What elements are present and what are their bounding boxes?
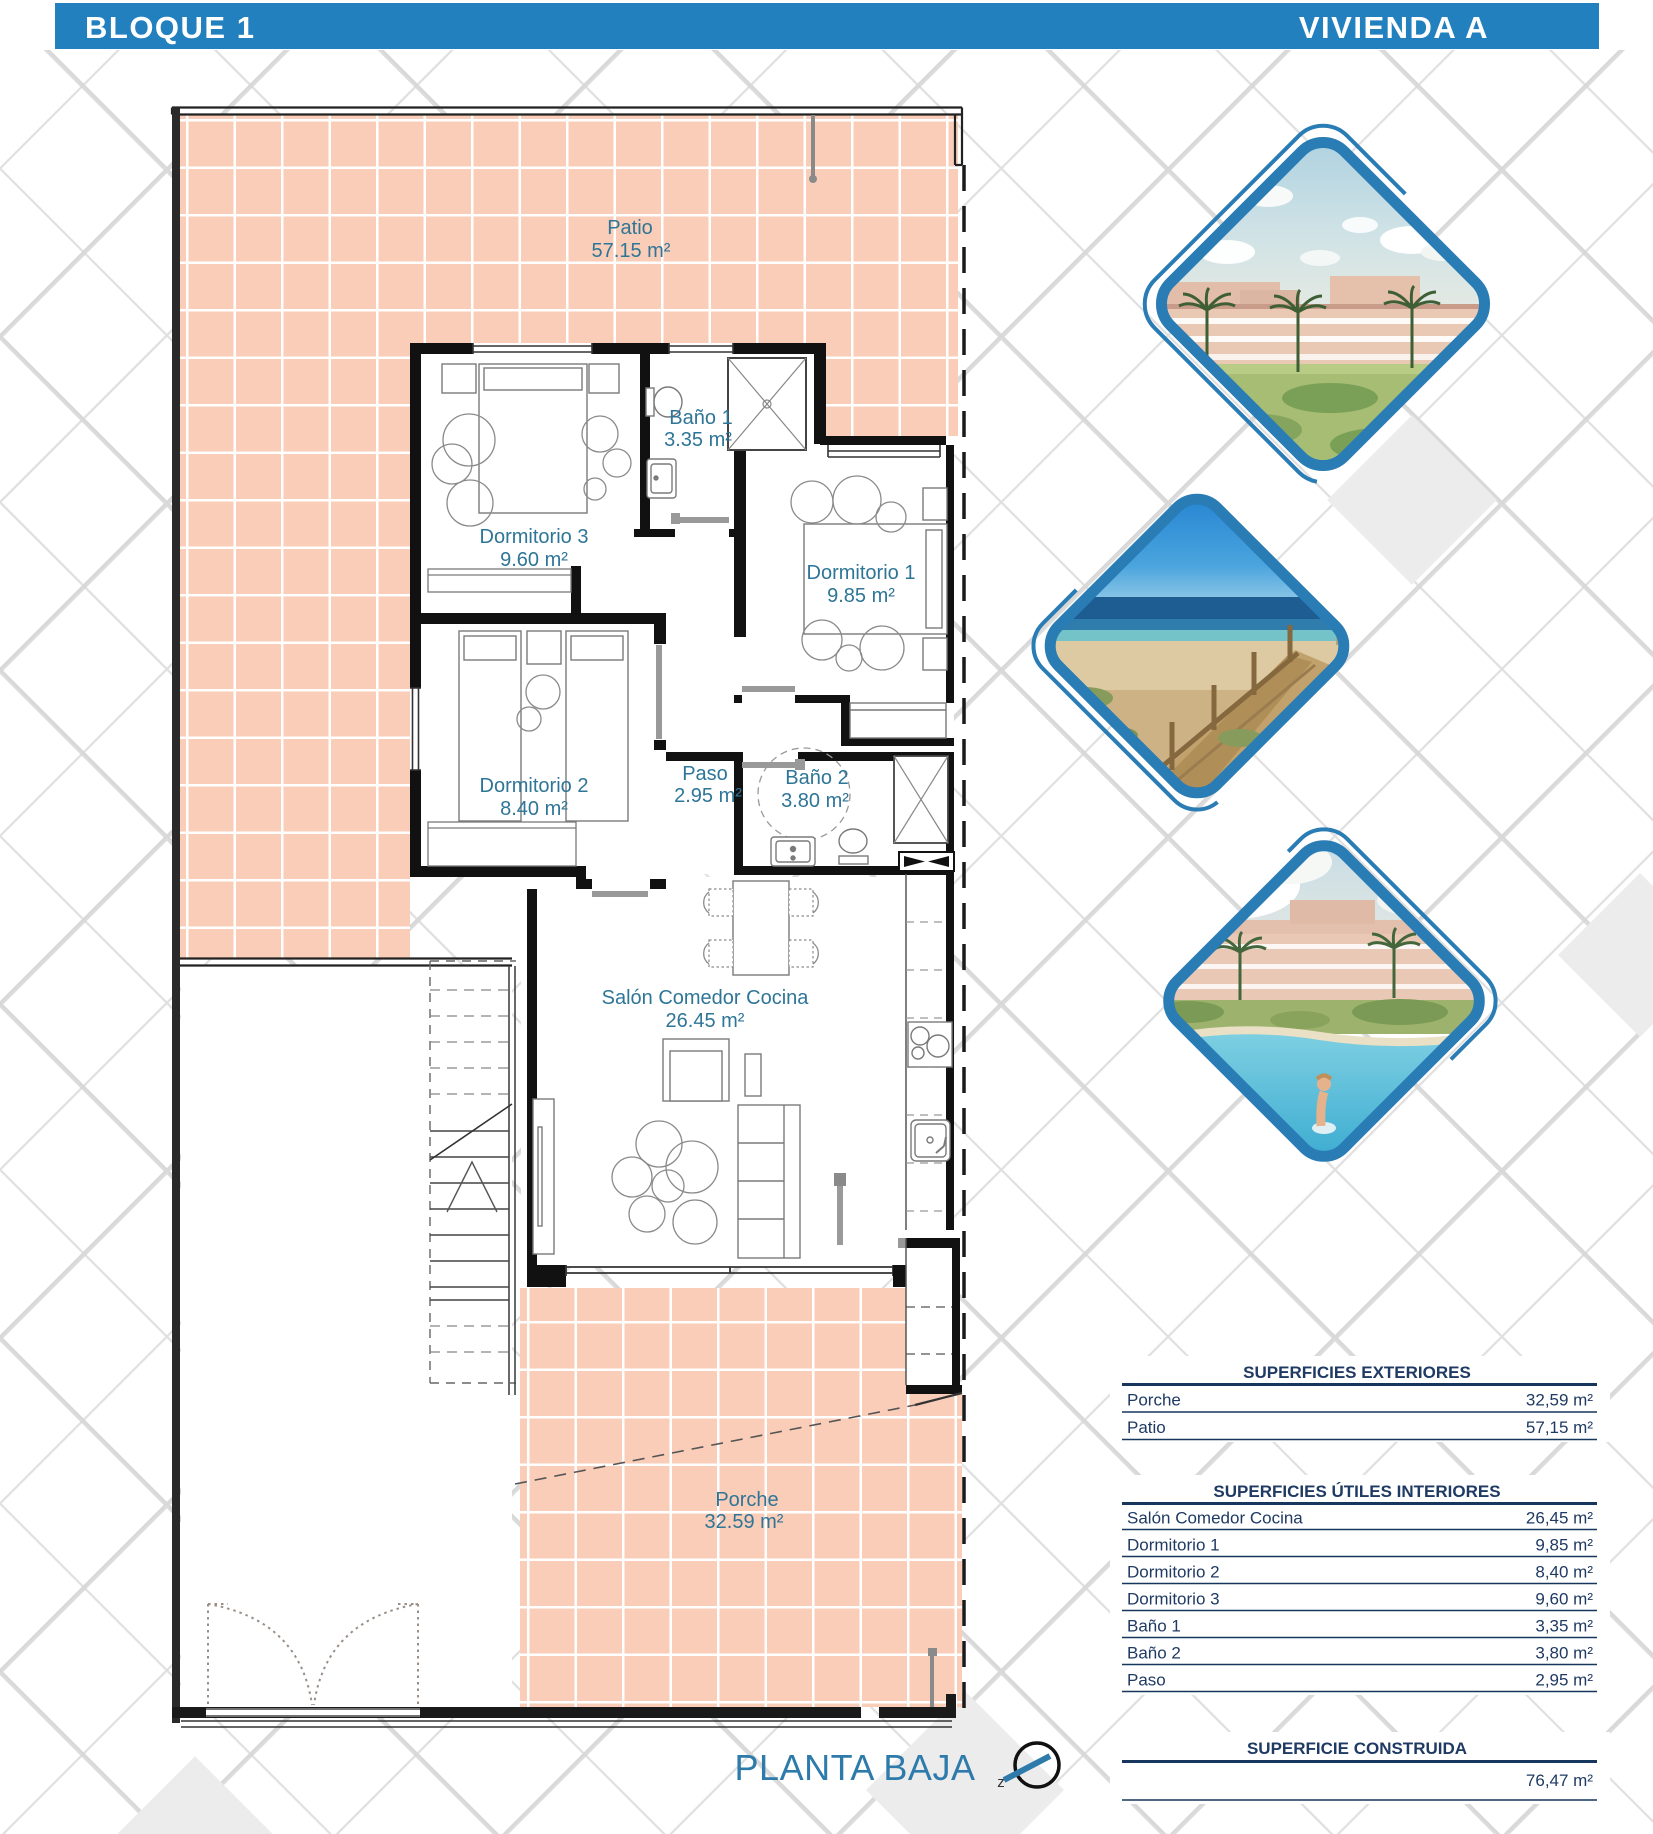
- svg-text:Baño 2: Baño 2: [1127, 1644, 1181, 1663]
- svg-text:32.59 m²: 32.59 m²: [705, 1511, 784, 1533]
- svg-text:3,80 m²: 3,80 m²: [1535, 1644, 1593, 1663]
- svg-text:z: z: [997, 1774, 1005, 1791]
- svg-text:32,59 m²: 32,59 m²: [1526, 1391, 1593, 1410]
- svg-text:2,95 m²: 2,95 m²: [1535, 1671, 1593, 1690]
- svg-text:57,15 m²: 57,15 m²: [1526, 1418, 1593, 1437]
- svg-text:PLANTA BAJA: PLANTA BAJA: [735, 1747, 976, 1788]
- svg-text:VIVIENDA A: VIVIENDA A: [1299, 10, 1489, 45]
- svg-text:Salón Comedor Cocina: Salón Comedor Cocina: [1127, 1509, 1303, 1528]
- svg-text:26.45 m²: 26.45 m²: [666, 1010, 745, 1032]
- svg-text:Baño 2: Baño 2: [785, 767, 848, 789]
- svg-text:Dormitorio 3: Dormitorio 3: [1127, 1590, 1220, 1609]
- svg-text:Dormitorio 1: Dormitorio 1: [1127, 1536, 1220, 1555]
- svg-text:76,47 m²: 76,47 m²: [1526, 1771, 1593, 1790]
- svg-text:8.40 m²: 8.40 m²: [500, 798, 568, 820]
- svg-text:Dormitorio 3: Dormitorio 3: [480, 526, 589, 548]
- svg-text:SUPERFICIES ÚTILES INTERIORES: SUPERFICIES ÚTILES INTERIORES: [1213, 1482, 1500, 1501]
- svg-text:Dormitorio 2: Dormitorio 2: [1127, 1563, 1220, 1582]
- svg-text:SUPERFICIE CONSTRUIDA: SUPERFICIE CONSTRUIDA: [1247, 1739, 1467, 1758]
- svg-text:Porche: Porche: [715, 1489, 778, 1511]
- svg-text:9,60 m²: 9,60 m²: [1535, 1590, 1593, 1609]
- svg-text:SUPERFICIES EXTERIORES: SUPERFICIES EXTERIORES: [1243, 1363, 1471, 1382]
- svg-text:BLOQUE 1: BLOQUE 1: [85, 10, 255, 45]
- svg-text:9.85 m²: 9.85 m²: [827, 585, 895, 607]
- svg-text:9,85 m²: 9,85 m²: [1535, 1536, 1593, 1555]
- svg-text:Salón Comedor Cocina: Salón Comedor Cocina: [602, 987, 810, 1009]
- svg-text:Baño 1: Baño 1: [1127, 1617, 1181, 1636]
- svg-text:Dormitorio 1: Dormitorio 1: [807, 562, 916, 584]
- svg-text:57.15 m²: 57.15 m²: [592, 240, 671, 262]
- svg-text:Patio: Patio: [607, 217, 653, 239]
- svg-text:Paso: Paso: [1127, 1671, 1166, 1690]
- svg-text:9.60 m²: 9.60 m²: [500, 549, 568, 571]
- svg-text:3,35 m²: 3,35 m²: [1535, 1617, 1593, 1636]
- svg-text:Paso: Paso: [682, 763, 728, 785]
- svg-text:Porche: Porche: [1127, 1391, 1181, 1410]
- svg-text:Dormitorio 2: Dormitorio 2: [480, 775, 589, 797]
- svg-text:8,40 m²: 8,40 m²: [1535, 1563, 1593, 1582]
- svg-text:Patio: Patio: [1127, 1418, 1166, 1437]
- svg-text:26,45 m²: 26,45 m²: [1526, 1509, 1593, 1528]
- svg-text:Baño 1: Baño 1: [669, 407, 732, 429]
- svg-text:3.35 m²: 3.35 m²: [664, 429, 732, 451]
- svg-text:2.95 m²: 2.95 m²: [674, 785, 742, 807]
- svg-text:3.80 m²: 3.80 m²: [781, 790, 849, 812]
